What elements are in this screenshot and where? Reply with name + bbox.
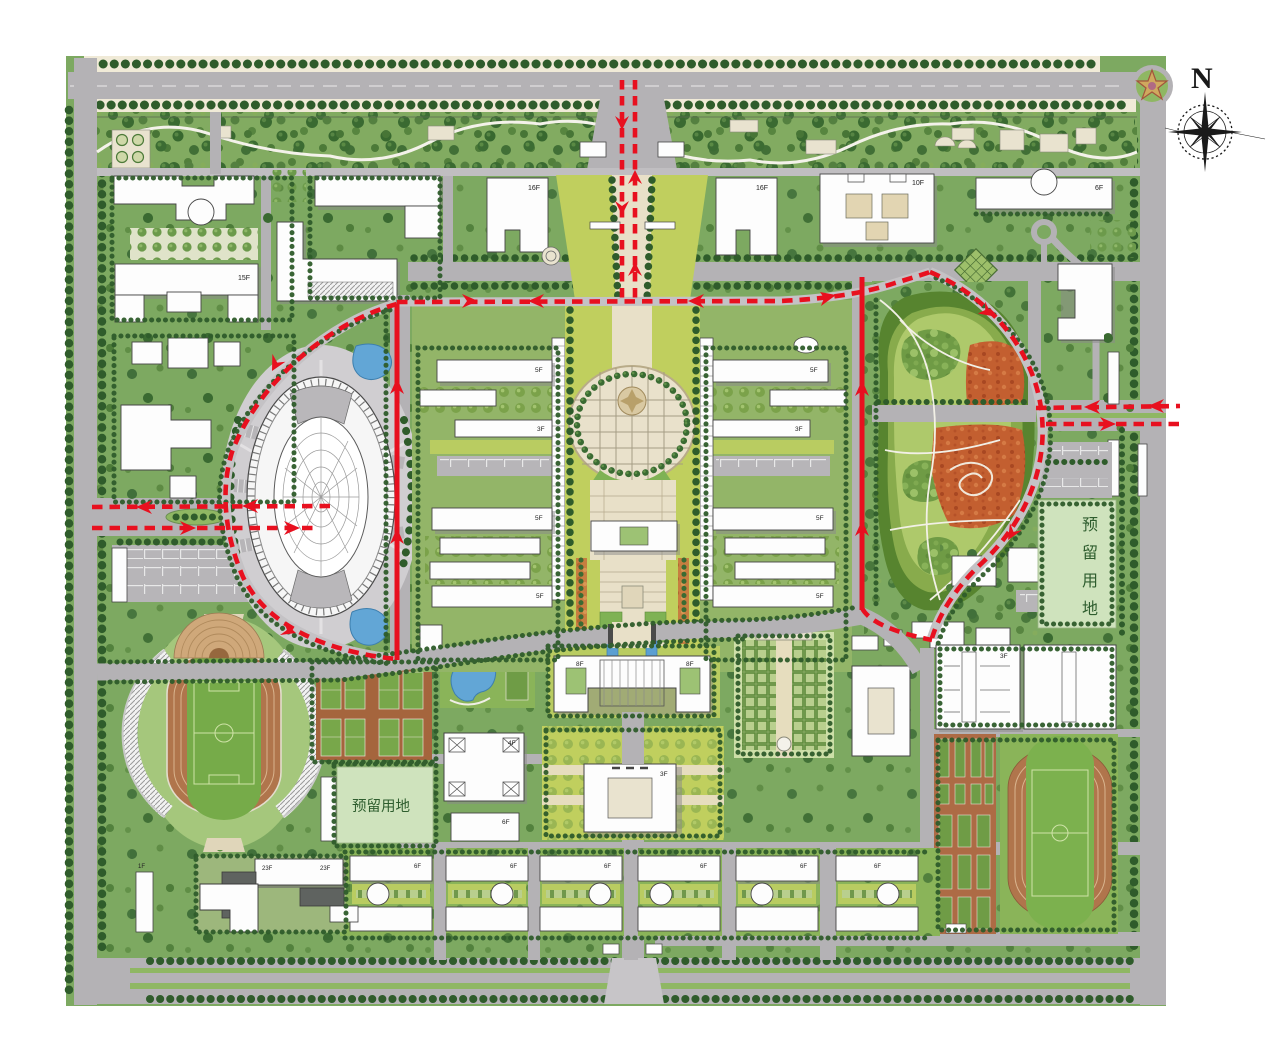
svg-text:6F: 6F (800, 864, 807, 870)
svg-text:3F: 3F (537, 426, 545, 433)
svg-text:6F: 6F (874, 864, 881, 870)
svg-text:5F: 5F (535, 515, 543, 522)
svg-text:6F: 6F (700, 864, 707, 870)
svg-text:3F: 3F (1000, 653, 1008, 660)
svg-text:15F: 15F (238, 275, 250, 282)
svg-text:6F: 6F (604, 864, 611, 870)
svg-text:6F: 6F (414, 864, 421, 870)
svg-text:23F: 23F (262, 866, 273, 872)
svg-text:5F: 5F (535, 367, 543, 374)
svg-text:6F: 6F (510, 864, 517, 870)
svg-text:3F: 3F (795, 426, 803, 433)
svg-text:N: N (1191, 62, 1213, 95)
svg-text:8F: 8F (576, 661, 584, 668)
svg-text:留: 留 (1082, 544, 1098, 562)
svg-text:16F: 16F (756, 185, 768, 192)
svg-text:5F: 5F (816, 593, 824, 600)
svg-text:10F: 10F (912, 180, 924, 187)
svg-text:1F: 1F (138, 864, 145, 870)
svg-text:3F: 3F (660, 771, 668, 778)
svg-text:预: 预 (1082, 516, 1098, 534)
svg-text:预留用地: 预留用地 (352, 798, 410, 815)
svg-text:4F: 4F (508, 740, 516, 747)
svg-text:用: 用 (1082, 573, 1098, 590)
svg-text:6F: 6F (1095, 185, 1103, 192)
svg-text:16F: 16F (528, 185, 540, 192)
svg-text:8F: 8F (686, 661, 694, 668)
svg-text:5F: 5F (816, 515, 824, 522)
svg-text:6F: 6F (502, 819, 510, 826)
svg-text:地: 地 (1082, 600, 1098, 618)
svg-text:23F: 23F (320, 866, 331, 872)
svg-text:5F: 5F (810, 367, 818, 374)
svg-text:5F: 5F (536, 593, 544, 600)
